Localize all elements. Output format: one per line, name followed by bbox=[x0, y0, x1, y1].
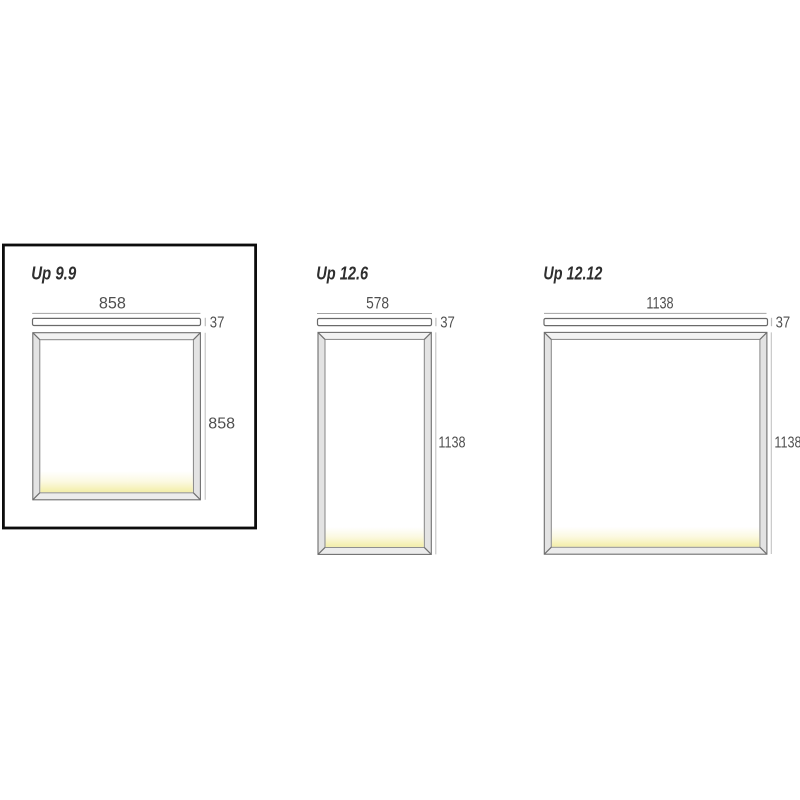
svg-text:858: 858 bbox=[99, 294, 126, 313]
svg-text:37: 37 bbox=[776, 314, 791, 331]
svg-text:1138: 1138 bbox=[438, 435, 465, 452]
svg-text:1138: 1138 bbox=[646, 294, 673, 313]
svg-text:858: 858 bbox=[208, 415, 235, 432]
svg-text:Up 12.6: Up 12.6 bbox=[316, 264, 369, 284]
svg-text:37: 37 bbox=[210, 314, 225, 331]
svg-text:1138: 1138 bbox=[774, 435, 800, 452]
svg-text:Up 9.9: Up 9.9 bbox=[31, 264, 76, 284]
svg-text:578: 578 bbox=[366, 294, 389, 313]
svg-text:Up 12.12: Up 12.12 bbox=[543, 263, 602, 283]
svg-text:37: 37 bbox=[440, 314, 455, 331]
